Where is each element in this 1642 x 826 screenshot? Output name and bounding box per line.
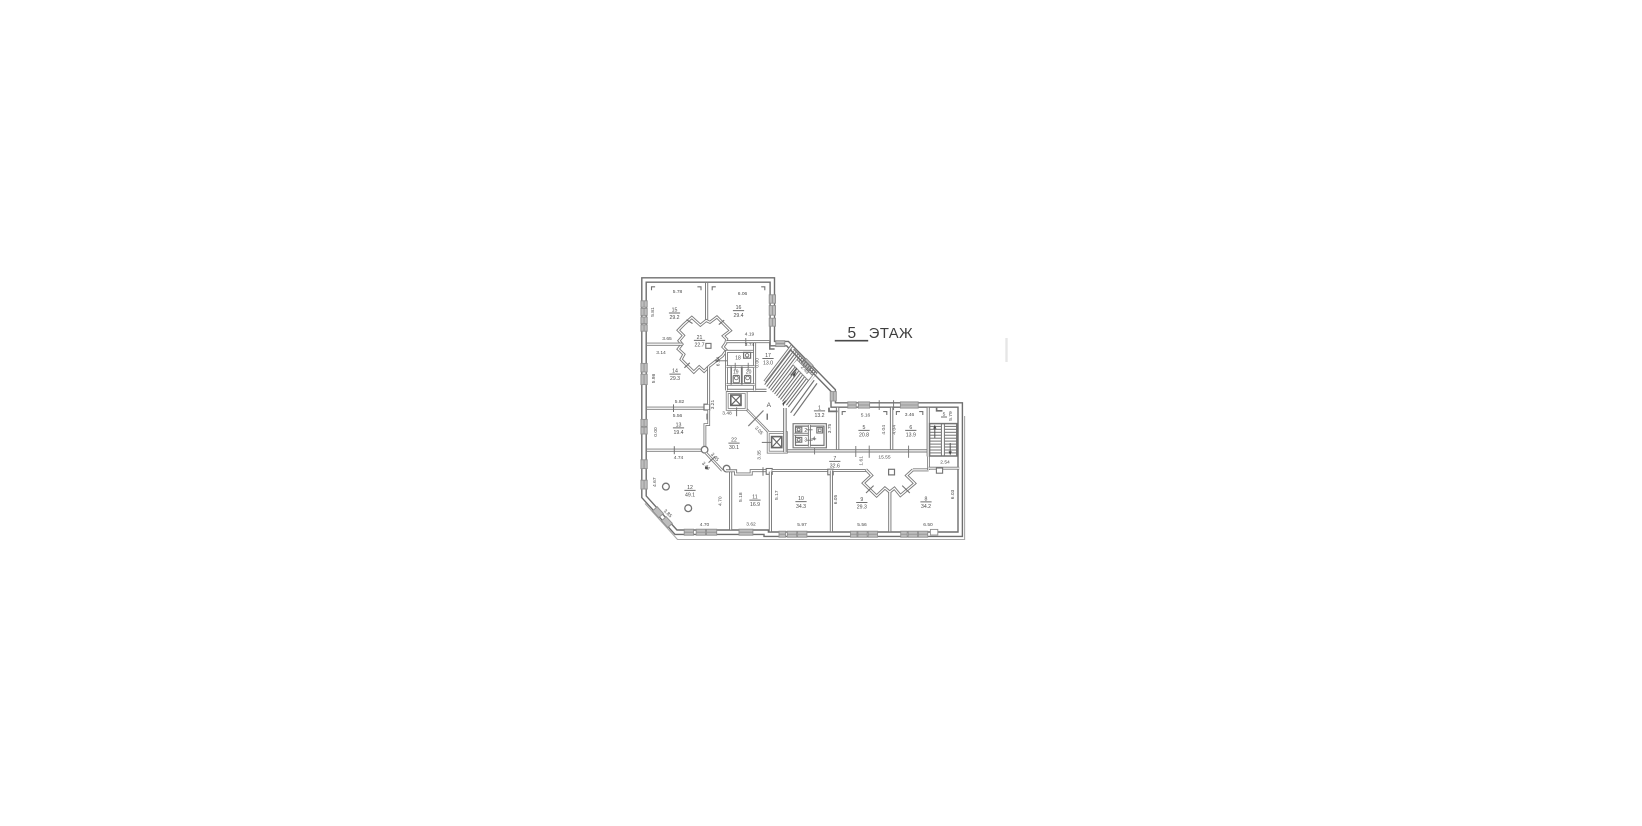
svg-text:5.79: 5.79 bbox=[948, 411, 954, 421]
svg-text:0.00: 0.00 bbox=[653, 427, 659, 437]
svg-text:5.82: 5.82 bbox=[675, 399, 685, 405]
svg-text:15.55: 15.55 bbox=[878, 454, 891, 460]
svg-text:3.74: 3.74 bbox=[745, 342, 755, 348]
svg-text:6.05: 6.05 bbox=[833, 494, 839, 504]
svg-text:3: 3 bbox=[804, 438, 807, 444]
svg-text:5.17: 5.17 bbox=[774, 490, 780, 500]
svg-text:6.50: 6.50 bbox=[923, 522, 933, 528]
svg-text:5.18: 5.18 bbox=[738, 492, 744, 502]
svg-text:6.03: 6.03 bbox=[950, 489, 956, 499]
svg-text:3.21: 3.21 bbox=[710, 399, 716, 409]
svg-text:4.04: 4.04 bbox=[881, 425, 887, 435]
svg-text:32.6: 32.6 bbox=[830, 463, 840, 469]
svg-text:5.78: 5.78 bbox=[673, 289, 683, 295]
svg-text:29.2: 29.2 bbox=[669, 315, 679, 321]
svg-text:4: 4 bbox=[813, 436, 816, 442]
svg-text:29.3: 29.3 bbox=[857, 505, 867, 511]
svg-text:5.98: 5.98 bbox=[651, 373, 657, 383]
svg-text:16.9: 16.9 bbox=[750, 502, 760, 508]
svg-text:4.70: 4.70 bbox=[700, 522, 710, 528]
svg-text:3.35: 3.35 bbox=[757, 450, 763, 460]
svg-text:34.2: 34.2 bbox=[921, 504, 931, 510]
svg-text:3.62: 3.62 bbox=[746, 522, 756, 528]
svg-text:3.75: 3.75 bbox=[827, 423, 833, 433]
svg-text:49.1: 49.1 bbox=[685, 492, 695, 498]
svg-text:4.70: 4.70 bbox=[718, 496, 724, 506]
svg-text:19.4: 19.4 bbox=[673, 430, 683, 436]
svg-text:2: 2 bbox=[804, 428, 807, 434]
svg-text:6.54: 6.54 bbox=[716, 356, 722, 366]
svg-text:20: 20 bbox=[746, 370, 752, 376]
svg-text:13.9: 13.9 bbox=[906, 432, 916, 438]
svg-text:5.97: 5.97 bbox=[797, 522, 807, 528]
svg-text:1.61: 1.61 bbox=[859, 456, 865, 466]
svg-text:20.8: 20.8 bbox=[859, 432, 869, 438]
svg-text:30.1: 30.1 bbox=[729, 445, 739, 451]
svg-text:6.06: 6.06 bbox=[738, 291, 748, 297]
svg-text:18: 18 bbox=[735, 356, 741, 362]
svg-text:3.14: 3.14 bbox=[656, 350, 666, 356]
svg-text:3.48: 3.48 bbox=[722, 410, 732, 416]
svg-text:4.19: 4.19 bbox=[745, 331, 755, 337]
svg-text:5.16: 5.16 bbox=[861, 412, 871, 418]
svg-text:4.04: 4.04 bbox=[891, 425, 897, 435]
svg-text:3.65: 3.65 bbox=[662, 336, 672, 342]
svg-text:A: A bbox=[767, 402, 772, 409]
svg-text:ЭТАЖ: ЭТАЖ bbox=[869, 326, 913, 342]
svg-text:3.46: 3.46 bbox=[905, 412, 915, 418]
svg-text:19: 19 bbox=[733, 370, 739, 376]
svg-text:13.0: 13.0 bbox=[763, 361, 773, 367]
svg-text:5.56: 5.56 bbox=[857, 522, 867, 528]
svg-text:13.2: 13.2 bbox=[814, 413, 824, 419]
svg-text:22.7: 22.7 bbox=[694, 342, 704, 348]
svg-text:34.3: 34.3 bbox=[796, 504, 806, 510]
svg-text:5.56: 5.56 bbox=[673, 413, 683, 419]
svg-text:29.4: 29.4 bbox=[733, 313, 743, 319]
svg-text:4.74: 4.74 bbox=[674, 455, 684, 461]
svg-text:5: 5 bbox=[847, 325, 856, 342]
svg-text:29.3: 29.3 bbox=[670, 376, 680, 382]
svg-text:0.00: 0.00 bbox=[754, 358, 760, 368]
svg-text:4.67: 4.67 bbox=[652, 477, 658, 487]
svg-text:2.54: 2.54 bbox=[940, 460, 950, 466]
svg-text:5.81: 5.81 bbox=[650, 307, 656, 317]
